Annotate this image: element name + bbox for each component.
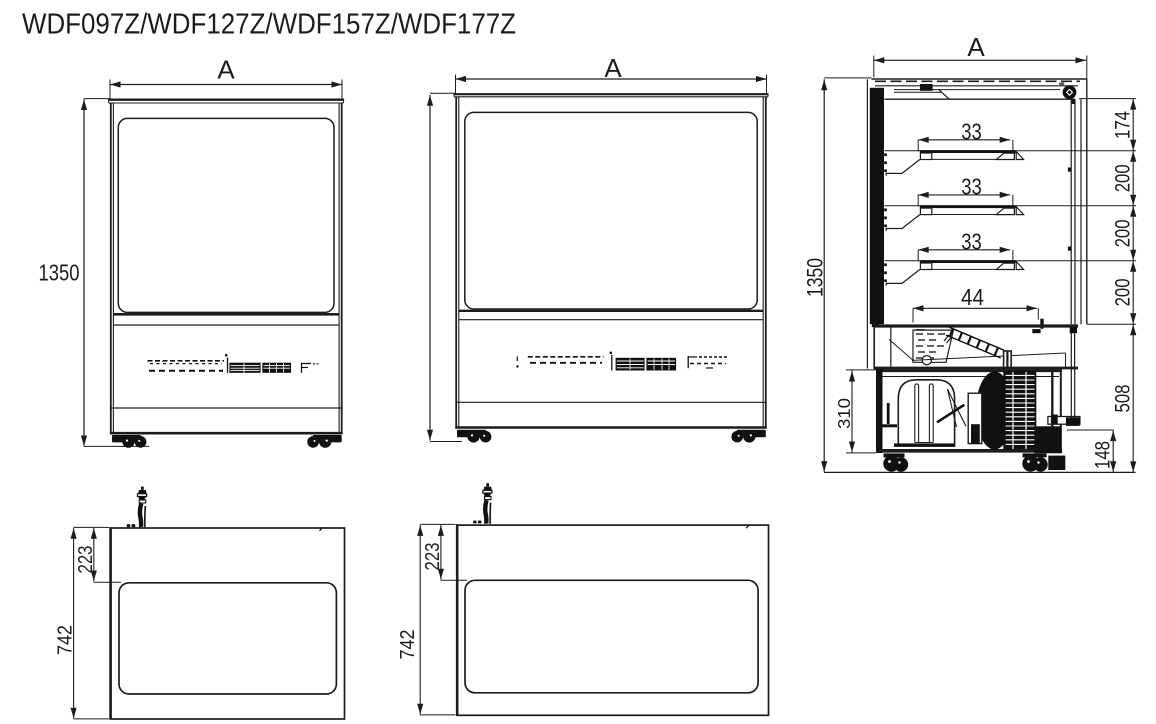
- svg-text:200: 200: [1112, 164, 1135, 192]
- svg-text:1350: 1350: [802, 258, 827, 297]
- svg-text:174: 174: [1112, 111, 1135, 139]
- svg-text:A: A: [604, 53, 622, 83]
- svg-text:200: 200: [1112, 219, 1135, 247]
- svg-text:A: A: [217, 55, 235, 85]
- svg-text:148: 148: [1092, 441, 1115, 469]
- svg-text:WDF097Z/WDF127Z/WDF157Z/WDF177: WDF097Z/WDF127Z/WDF157Z/WDF177Z: [22, 9, 516, 41]
- svg-text:223: 223: [422, 543, 444, 571]
- svg-text:200: 200: [1112, 278, 1135, 306]
- svg-text:310: 310: [834, 398, 854, 429]
- svg-text:742: 742: [55, 625, 77, 655]
- svg-text:A: A: [967, 32, 985, 62]
- svg-text:223: 223: [75, 546, 97, 574]
- svg-text:44: 44: [961, 284, 984, 310]
- svg-text:742: 742: [397, 630, 419, 660]
- svg-text:1350: 1350: [39, 260, 80, 286]
- svg-text:508: 508: [1112, 385, 1135, 413]
